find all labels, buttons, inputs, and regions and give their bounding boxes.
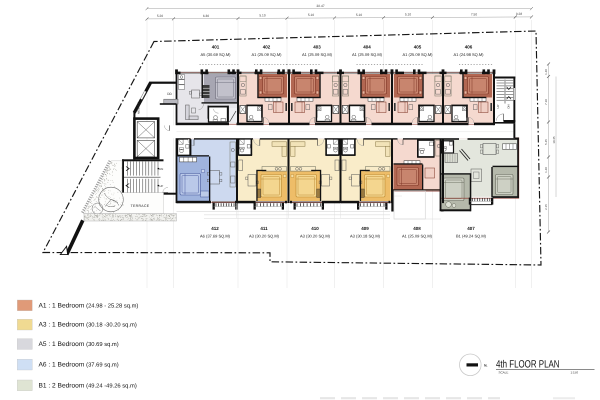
svg-text:5.10: 5.10 (405, 13, 411, 17)
svg-text:401: 401 (212, 44, 220, 49)
svg-text:ME/ELEC: ME/ELEC (138, 102, 141, 114)
svg-text:5.20: 5.20 (157, 14, 163, 18)
svg-text:2.15: 2.15 (544, 204, 548, 210)
svg-text:411: 411 (260, 226, 268, 231)
svg-text:A3 (30.20 SQ.M): A3 (30.20 SQ.M) (249, 234, 280, 239)
svg-text:5.10: 5.10 (259, 14, 265, 18)
svg-text:5.45: 5.45 (544, 139, 548, 145)
svg-text:B1 : 2 Bedroom (49.24 -49.26 s: B1 : 2 Bedroom (49.24 -49.26 sq.m) (39, 382, 137, 389)
svg-text:B1 (49.24 SQ.M): B1 (49.24 SQ.M) (456, 234, 487, 239)
svg-text:1.40: 1.40 (544, 167, 548, 173)
svg-text:410: 410 (311, 226, 319, 231)
svg-text:402: 402 (263, 44, 271, 49)
svg-text:A3 (30.20 SQ.M): A3 (30.20 SQ.M) (300, 234, 331, 239)
svg-text:A3 (30.18 SQ.M): A3 (30.18 SQ.M) (350, 234, 381, 239)
svg-text:5.10: 5.10 (356, 13, 362, 17)
svg-text:409: 409 (361, 226, 369, 231)
svg-text:5.10: 5.10 (308, 13, 314, 17)
svg-text:7.10: 7.10 (544, 99, 548, 105)
svg-text:UP: UP (496, 104, 500, 108)
svg-text:403: 403 (313, 44, 321, 49)
svg-text:TERRACE: TERRACE (131, 204, 150, 208)
svg-text:406: 406 (465, 44, 473, 49)
svg-text:407: 407 (467, 226, 475, 231)
svg-text:1.40: 1.40 (544, 69, 548, 75)
svg-text:1:150: 1:150 (570, 370, 578, 374)
svg-text:DN: DN (506, 104, 510, 108)
svg-text:A3 : 1 Bedroom (30.18 -30.20 s: A3 : 1 Bedroom (30.18 -30.20 sq.m) (39, 322, 137, 329)
svg-text:405: 405 (414, 44, 422, 49)
svg-text:A1 : 1 Bedroom (24.98 - 25.28: A1 : 1 Bedroom (24.98 - 25.28 sq.m) (39, 302, 139, 309)
svg-text:A1 (25.09 SQ.M): A1 (25.09 SQ.M) (251, 52, 282, 57)
svg-text:DD: DD (167, 92, 172, 96)
svg-text:DN: DN (159, 167, 163, 171)
svg-text:38.47: 38.47 (316, 4, 324, 8)
svg-text:4th FLOOR PLAN: 4th FLOOR PLAN (496, 359, 560, 371)
svg-text:0.28: 0.28 (516, 12, 522, 16)
svg-text:412: 412 (211, 226, 219, 231)
svg-text:404: 404 (363, 44, 371, 49)
svg-text:A1 (25.09 SQ.M): A1 (25.09 SQ.M) (302, 52, 333, 57)
svg-text:A1 (24.98 SQ.M): A1 (24.98 SQ.M) (453, 52, 484, 57)
svg-text:UP: UP (159, 184, 163, 188)
svg-text:408: 408 (413, 226, 421, 231)
svg-text:SCALE: SCALE (499, 370, 509, 374)
svg-text:A1 (25.09 SQ.M): A1 (25.09 SQ.M) (352, 52, 383, 57)
svg-text:A5 : 1 Bedroom (30.69 sq.m): A5 : 1 Bedroom (30.69 sq.m) (39, 341, 119, 348)
svg-text:A5 (30.69 SQ.M): A5 (30.69 SQ.M) (200, 52, 231, 57)
svg-text:N.: N. (484, 363, 487, 367)
svg-text:10.35: 10.35 (552, 136, 556, 144)
svg-text:6.30: 6.30 (203, 14, 209, 18)
svg-text:7.50: 7.50 (471, 12, 477, 16)
svg-text:A6 : 1 Bedroom (37.69 sq.m): A6 : 1 Bedroom (37.69 sq.m) (39, 362, 119, 369)
svg-text:A1 (25.09 SQ.M): A1 (25.09 SQ.M) (402, 234, 433, 239)
svg-text:A6 (37.69 SQ.M): A6 (37.69 SQ.M) (200, 234, 231, 239)
svg-text:A1 (25.09 SQ.M): A1 (25.09 SQ.M) (402, 52, 433, 57)
